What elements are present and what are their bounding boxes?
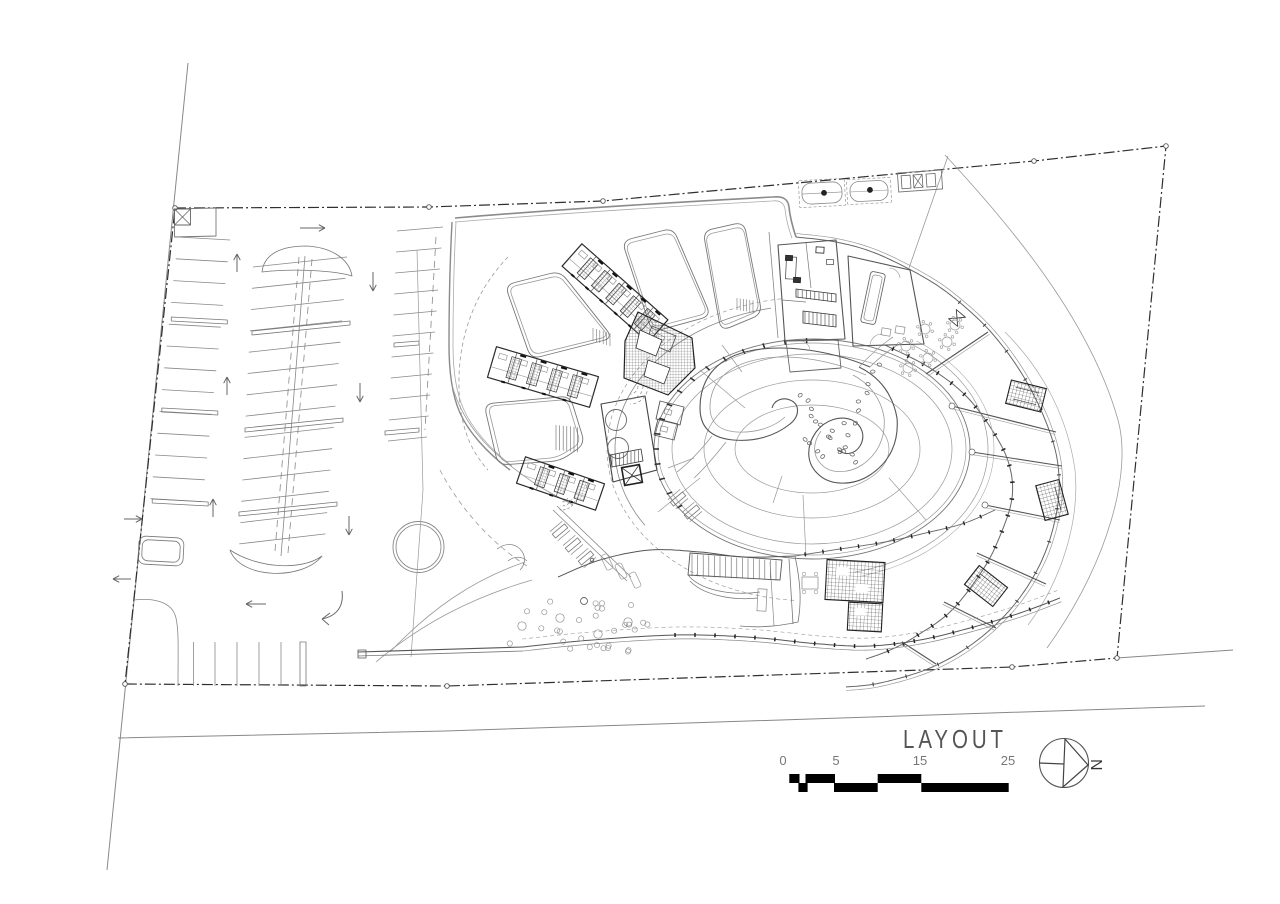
svg-text:25: 25: [1001, 753, 1015, 768]
svg-text:N: N: [1087, 759, 1104, 771]
svg-text:LAYOUT: LAYOUT: [903, 724, 1007, 754]
svg-text:0: 0: [779, 753, 786, 768]
svg-text:5: 5: [832, 753, 839, 768]
svg-text:15: 15: [913, 753, 927, 768]
